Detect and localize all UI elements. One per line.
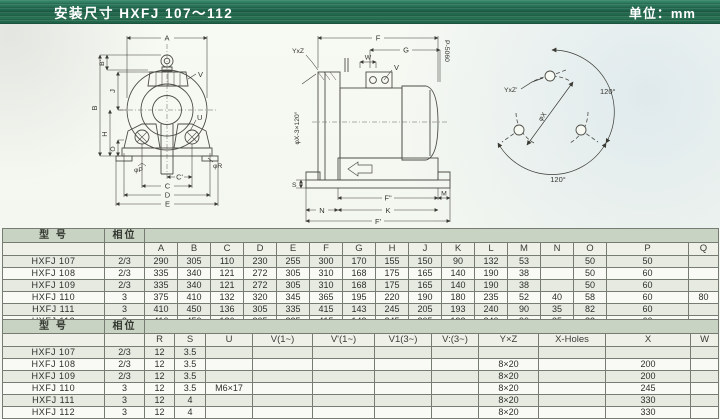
dim-label-phi-x3: φX-3×120° [293, 111, 301, 144]
value-cell: 60 [607, 304, 689, 316]
value-cell [541, 256, 574, 268]
value-cell: 143 [343, 304, 376, 316]
value-cell [206, 347, 253, 359]
value-cell [539, 359, 606, 371]
value-cell [539, 347, 606, 359]
drawing-area: A B B' J H O V U φP φR C' C D E [0, 24, 720, 228]
column-header: V(1~) [253, 334, 313, 347]
value-cell: 3.5 [175, 359, 206, 371]
value-cell: 12 [145, 395, 175, 407]
phase-cell: 3 [105, 292, 145, 304]
column-header: D [244, 243, 277, 256]
value-cell: 53 [508, 256, 541, 268]
dim-label-f: F [376, 34, 381, 43]
dim-label-d: D [165, 191, 171, 200]
value-cell [206, 359, 253, 371]
value-cell: 165 [409, 268, 442, 280]
value-cell: 168 [343, 268, 376, 280]
dim-label-yxz: YxZ [292, 48, 304, 55]
value-cell [375, 347, 432, 359]
value-cell: 272 [244, 280, 277, 292]
model-cell: HXFJ 109 [3, 371, 105, 383]
model-cell: HXFJ 108 [3, 359, 105, 371]
value-cell: 3.5 [175, 383, 206, 395]
value-cell [313, 371, 375, 383]
value-cell [539, 383, 606, 395]
dim-label-p-hz: P-5060 [443, 40, 450, 62]
value-cell: 305 [277, 268, 310, 280]
dim-label-k: K [385, 206, 390, 215]
value-cell: 415 [310, 304, 343, 316]
value-cell [689, 256, 719, 268]
value-cell: 155 [376, 256, 409, 268]
value-cell: 3.5 [175, 347, 206, 359]
dims-span-cell [145, 229, 719, 243]
column-header: N [541, 243, 574, 256]
value-cell: 175 [376, 280, 409, 292]
value-cell: 110 [211, 256, 244, 268]
value-cell: 375 [145, 292, 178, 304]
dims-span-cell [145, 320, 719, 334]
phase-cell: 2/3 [105, 280, 145, 292]
dim-label-u: U [197, 113, 202, 122]
phase-cell: 2/3 [105, 359, 145, 371]
table-row: HXFJ 1092/333534012127230531016817516514… [3, 280, 719, 292]
column-header: V1(3~) [375, 334, 432, 347]
value-cell [375, 395, 432, 407]
value-cell [432, 383, 479, 395]
value-cell: 300 [310, 256, 343, 268]
column-header: W [691, 334, 719, 347]
dim-label-c: C [165, 182, 171, 191]
dim-label-j: J [108, 89, 117, 93]
value-cell: 335 [145, 268, 178, 280]
value-cell: 165 [409, 280, 442, 292]
model-cell: HXFJ 110 [3, 292, 105, 304]
value-cell: 195 [343, 292, 376, 304]
value-cell [541, 280, 574, 292]
value-cell: 150 [409, 256, 442, 268]
front-view-drawing: A B B' J H O V U φP φR C' C D E [92, 28, 304, 228]
value-cell: 340 [178, 268, 211, 280]
value-cell: 12 [145, 383, 175, 395]
value-cell: 170 [343, 256, 376, 268]
empty-cell [105, 334, 145, 347]
value-cell: 40 [541, 292, 574, 304]
column-header: X [606, 334, 691, 347]
value-cell: 8×20 [479, 371, 539, 383]
phase-cell: 2/3 [105, 268, 145, 280]
dim-label-a: A [164, 34, 169, 43]
value-cell [206, 371, 253, 383]
column-header: R [145, 334, 175, 347]
value-cell [313, 347, 375, 359]
phase-cell: 3 [105, 304, 145, 316]
value-cell: 245 [606, 383, 691, 395]
flange-drawing: YxZ' 120° 120° φX [480, 32, 715, 200]
model-cell: HXFJ 110 [3, 383, 105, 395]
table-row: HXFJ 1092/3123.58×20200 [3, 371, 719, 383]
column-header: A [145, 243, 178, 256]
column-header: Q [689, 243, 719, 256]
dim-label-h: H [100, 131, 109, 136]
table-row: HXFJ 11033754101323203453651952201901802… [3, 292, 719, 304]
unit-label: 单位：mm [629, 3, 696, 22]
value-cell: 140 [442, 280, 475, 292]
value-cell: 50 [574, 268, 607, 280]
table-row: HXFJ 1072/329030511023025530017015515090… [3, 256, 719, 268]
value-cell: 8×20 [479, 383, 539, 395]
value-cell [375, 383, 432, 395]
dim-label-c-prime: C' [176, 173, 183, 182]
value-cell [253, 395, 313, 407]
value-cell: 140 [442, 268, 475, 280]
value-cell: 205 [409, 304, 442, 316]
dim-label-b-prime: B' [99, 60, 106, 66]
value-cell: 132 [211, 292, 244, 304]
phase-cell: 3 [105, 383, 145, 395]
value-cell [541, 268, 574, 280]
value-cell: 175 [376, 268, 409, 280]
value-cell: 305 [244, 304, 277, 316]
dim-label-v-side: V [394, 63, 399, 72]
value-cell: 58 [574, 292, 607, 304]
value-cell: 12 [145, 359, 175, 371]
table-row: HXFJ 1082/333534012127230531016817516514… [3, 268, 719, 280]
phase-cell: 2/3 [105, 347, 145, 359]
model-column-header: 型 号 [3, 229, 105, 243]
value-cell: 80 [689, 292, 719, 304]
flange-label-yxz: YxZ' [504, 87, 517, 94]
dim-label-f-prime: F' [375, 217, 382, 226]
dimension-table-1: 型 号 相位 ABCDEFGHJKLMNOPQ HXFJ 1072/329030… [2, 228, 719, 328]
column-header: L [475, 243, 508, 256]
value-cell: 410 [178, 292, 211, 304]
value-cell: 60 [607, 268, 689, 280]
value-cell: 220 [376, 292, 409, 304]
column-header: G [343, 243, 376, 256]
value-cell: 335 [145, 280, 178, 292]
phase-cell: 3 [105, 395, 145, 407]
column-header: J [409, 243, 442, 256]
page-title: 安装尺寸 HXFJ 107～112 [54, 2, 233, 22]
value-cell: 190 [475, 280, 508, 292]
value-cell [375, 371, 432, 383]
table-row: HXFJ 1082/3123.58×20200 [3, 359, 719, 371]
column-header: V:(3~) [432, 334, 479, 347]
table1-header-row: 型 号 相位 [3, 229, 719, 243]
table-row: HXFJ 1103123.5M6×178×20245 [3, 383, 719, 395]
value-cell [313, 359, 375, 371]
column-header: B [178, 243, 211, 256]
column-header: P [607, 243, 689, 256]
dim-label-phi-r: φR [213, 163, 222, 170]
value-cell: 193 [442, 304, 475, 316]
empty-cell [3, 243, 105, 256]
value-cell [691, 395, 719, 407]
dim-label-f-dprime: F" [384, 194, 392, 203]
dim-label-m: M [441, 191, 447, 198]
value-cell [689, 268, 719, 280]
column-header: E [277, 243, 310, 256]
value-cell: 12 [145, 371, 175, 383]
dim-label-b: B [92, 105, 99, 110]
value-cell: 60 [607, 292, 689, 304]
value-cell: 335 [277, 304, 310, 316]
table1-letter-row: ABCDEFGHJKLMNOPQ [3, 243, 719, 256]
table-row: HXFJ 1072/3123.5 [3, 347, 719, 359]
value-cell [689, 304, 719, 316]
value-cell: 90 [442, 256, 475, 268]
value-cell [691, 383, 719, 395]
value-cell: 290 [145, 256, 178, 268]
value-cell: 365 [310, 292, 343, 304]
value-cell [539, 371, 606, 383]
empty-cell [105, 243, 145, 256]
dim-label-phi-p: φP [134, 167, 143, 174]
value-cell: 52 [508, 292, 541, 304]
value-cell: 50 [574, 280, 607, 292]
value-cell: 12 [145, 347, 175, 359]
value-cell: 132 [475, 256, 508, 268]
phase-cell: 2/3 [105, 256, 145, 268]
phase-cell: 2/3 [105, 371, 145, 383]
side-view-drawing: F G W V P-5060 YxZ φX-3×120° S F" M N K … [288, 28, 478, 228]
value-cell: 82 [574, 304, 607, 316]
value-cell [432, 395, 479, 407]
value-cell: 168 [343, 280, 376, 292]
column-header: K [442, 243, 475, 256]
value-cell [432, 347, 479, 359]
value-cell [253, 371, 313, 383]
column-header: V'(1~) [313, 334, 375, 347]
value-cell: 38 [508, 268, 541, 280]
value-cell: M6×17 [206, 383, 253, 395]
column-header: C [211, 243, 244, 256]
value-cell: 190 [409, 292, 442, 304]
value-cell: 245 [376, 304, 409, 316]
value-cell [432, 371, 479, 383]
value-cell: 200 [606, 359, 691, 371]
value-cell [691, 359, 719, 371]
table2-letter-row: RSUV(1~)V'(1~)V1(3~)V:(3~)Y×ZX-HolesXW [3, 334, 719, 347]
title-bar: 安装尺寸 HXFJ 107～112 单位：mm [0, 0, 720, 24]
model-cell: HXFJ 108 [3, 268, 105, 280]
dim-label-w: W [365, 55, 372, 62]
value-cell: 310 [310, 280, 343, 292]
value-cell: 235 [475, 292, 508, 304]
dim-label-s: S [292, 182, 297, 189]
value-cell [606, 347, 691, 359]
value-cell: 200 [606, 371, 691, 383]
flange-label-phi-x: φX [537, 111, 548, 123]
value-cell: 136 [211, 304, 244, 316]
value-cell [313, 395, 375, 407]
value-cell: 8×20 [479, 359, 539, 371]
phase-column-header: 相位 [105, 229, 145, 243]
value-cell [206, 395, 253, 407]
value-cell: 340 [178, 280, 211, 292]
flange-label-120-right: 120° [600, 87, 616, 96]
value-cell [313, 383, 375, 395]
value-cell: 240 [475, 304, 508, 316]
dimension-table-2: 型 号 相位 RSUV(1~)V'(1~)V1(3~)V:(3~)Y×ZX-Ho… [2, 319, 719, 419]
column-header: F [310, 243, 343, 256]
value-cell [432, 359, 479, 371]
value-cell: 305 [277, 280, 310, 292]
value-cell: 121 [211, 268, 244, 280]
value-cell: 345 [277, 292, 310, 304]
column-header: M [508, 243, 541, 256]
table-row: HXFJ 11134104501363053354151432452051932… [3, 304, 719, 316]
phase-column-header: 相位 [105, 320, 145, 334]
value-cell: 410 [145, 304, 178, 316]
model-cell: HXFJ 111 [3, 304, 105, 316]
dim-label-o: O [110, 146, 117, 151]
model-column-header: 型 号 [3, 320, 105, 334]
value-cell: 50 [607, 256, 689, 268]
empty-cell [3, 334, 105, 347]
value-cell [691, 347, 719, 359]
model-cell: HXFJ 109 [3, 280, 105, 292]
model-cell: HXFJ 107 [3, 256, 105, 268]
value-cell: 450 [178, 304, 211, 316]
value-cell [479, 347, 539, 359]
model-cell: HXFJ 107 [3, 347, 105, 359]
model-cell: HXFJ 111 [3, 395, 105, 407]
value-cell: 90 [508, 304, 541, 316]
value-cell: 50 [574, 256, 607, 268]
value-cell: 320 [244, 292, 277, 304]
column-header: O [574, 243, 607, 256]
value-cell: 310 [310, 268, 343, 280]
value-cell: 4 [175, 395, 206, 407]
column-header: H [376, 243, 409, 256]
value-cell: 180 [442, 292, 475, 304]
value-cell [253, 383, 313, 395]
value-cell: 305 [178, 256, 211, 268]
value-cell: 190 [475, 268, 508, 280]
column-header: X-Holes [539, 334, 606, 347]
column-header: U [206, 334, 253, 347]
value-cell [253, 347, 313, 359]
column-header: S [175, 334, 206, 347]
column-header: Y×Z [479, 334, 539, 347]
value-cell [691, 371, 719, 383]
flange-label-120-bottom: 120° [550, 175, 566, 184]
dim-label-g: G [403, 46, 409, 55]
value-cell [689, 280, 719, 292]
dim-label-e: E [165, 200, 170, 209]
value-cell: 60 [607, 280, 689, 292]
value-cell [539, 395, 606, 407]
value-cell: 330 [606, 395, 691, 407]
value-cell [375, 359, 432, 371]
value-cell: 255 [277, 256, 310, 268]
table-row: HXFJ 11131248×20330 [3, 395, 719, 407]
value-cell: 121 [211, 280, 244, 292]
value-cell: 272 [244, 268, 277, 280]
value-cell: 8×20 [479, 395, 539, 407]
value-cell: 38 [508, 280, 541, 292]
dim-label-v: V [198, 70, 203, 79]
value-cell: 35 [541, 304, 574, 316]
table2-header-row: 型 号 相位 [3, 320, 719, 334]
dim-label-n: N [319, 206, 324, 215]
value-cell: 230 [244, 256, 277, 268]
value-cell [253, 359, 313, 371]
value-cell: 3.5 [175, 371, 206, 383]
